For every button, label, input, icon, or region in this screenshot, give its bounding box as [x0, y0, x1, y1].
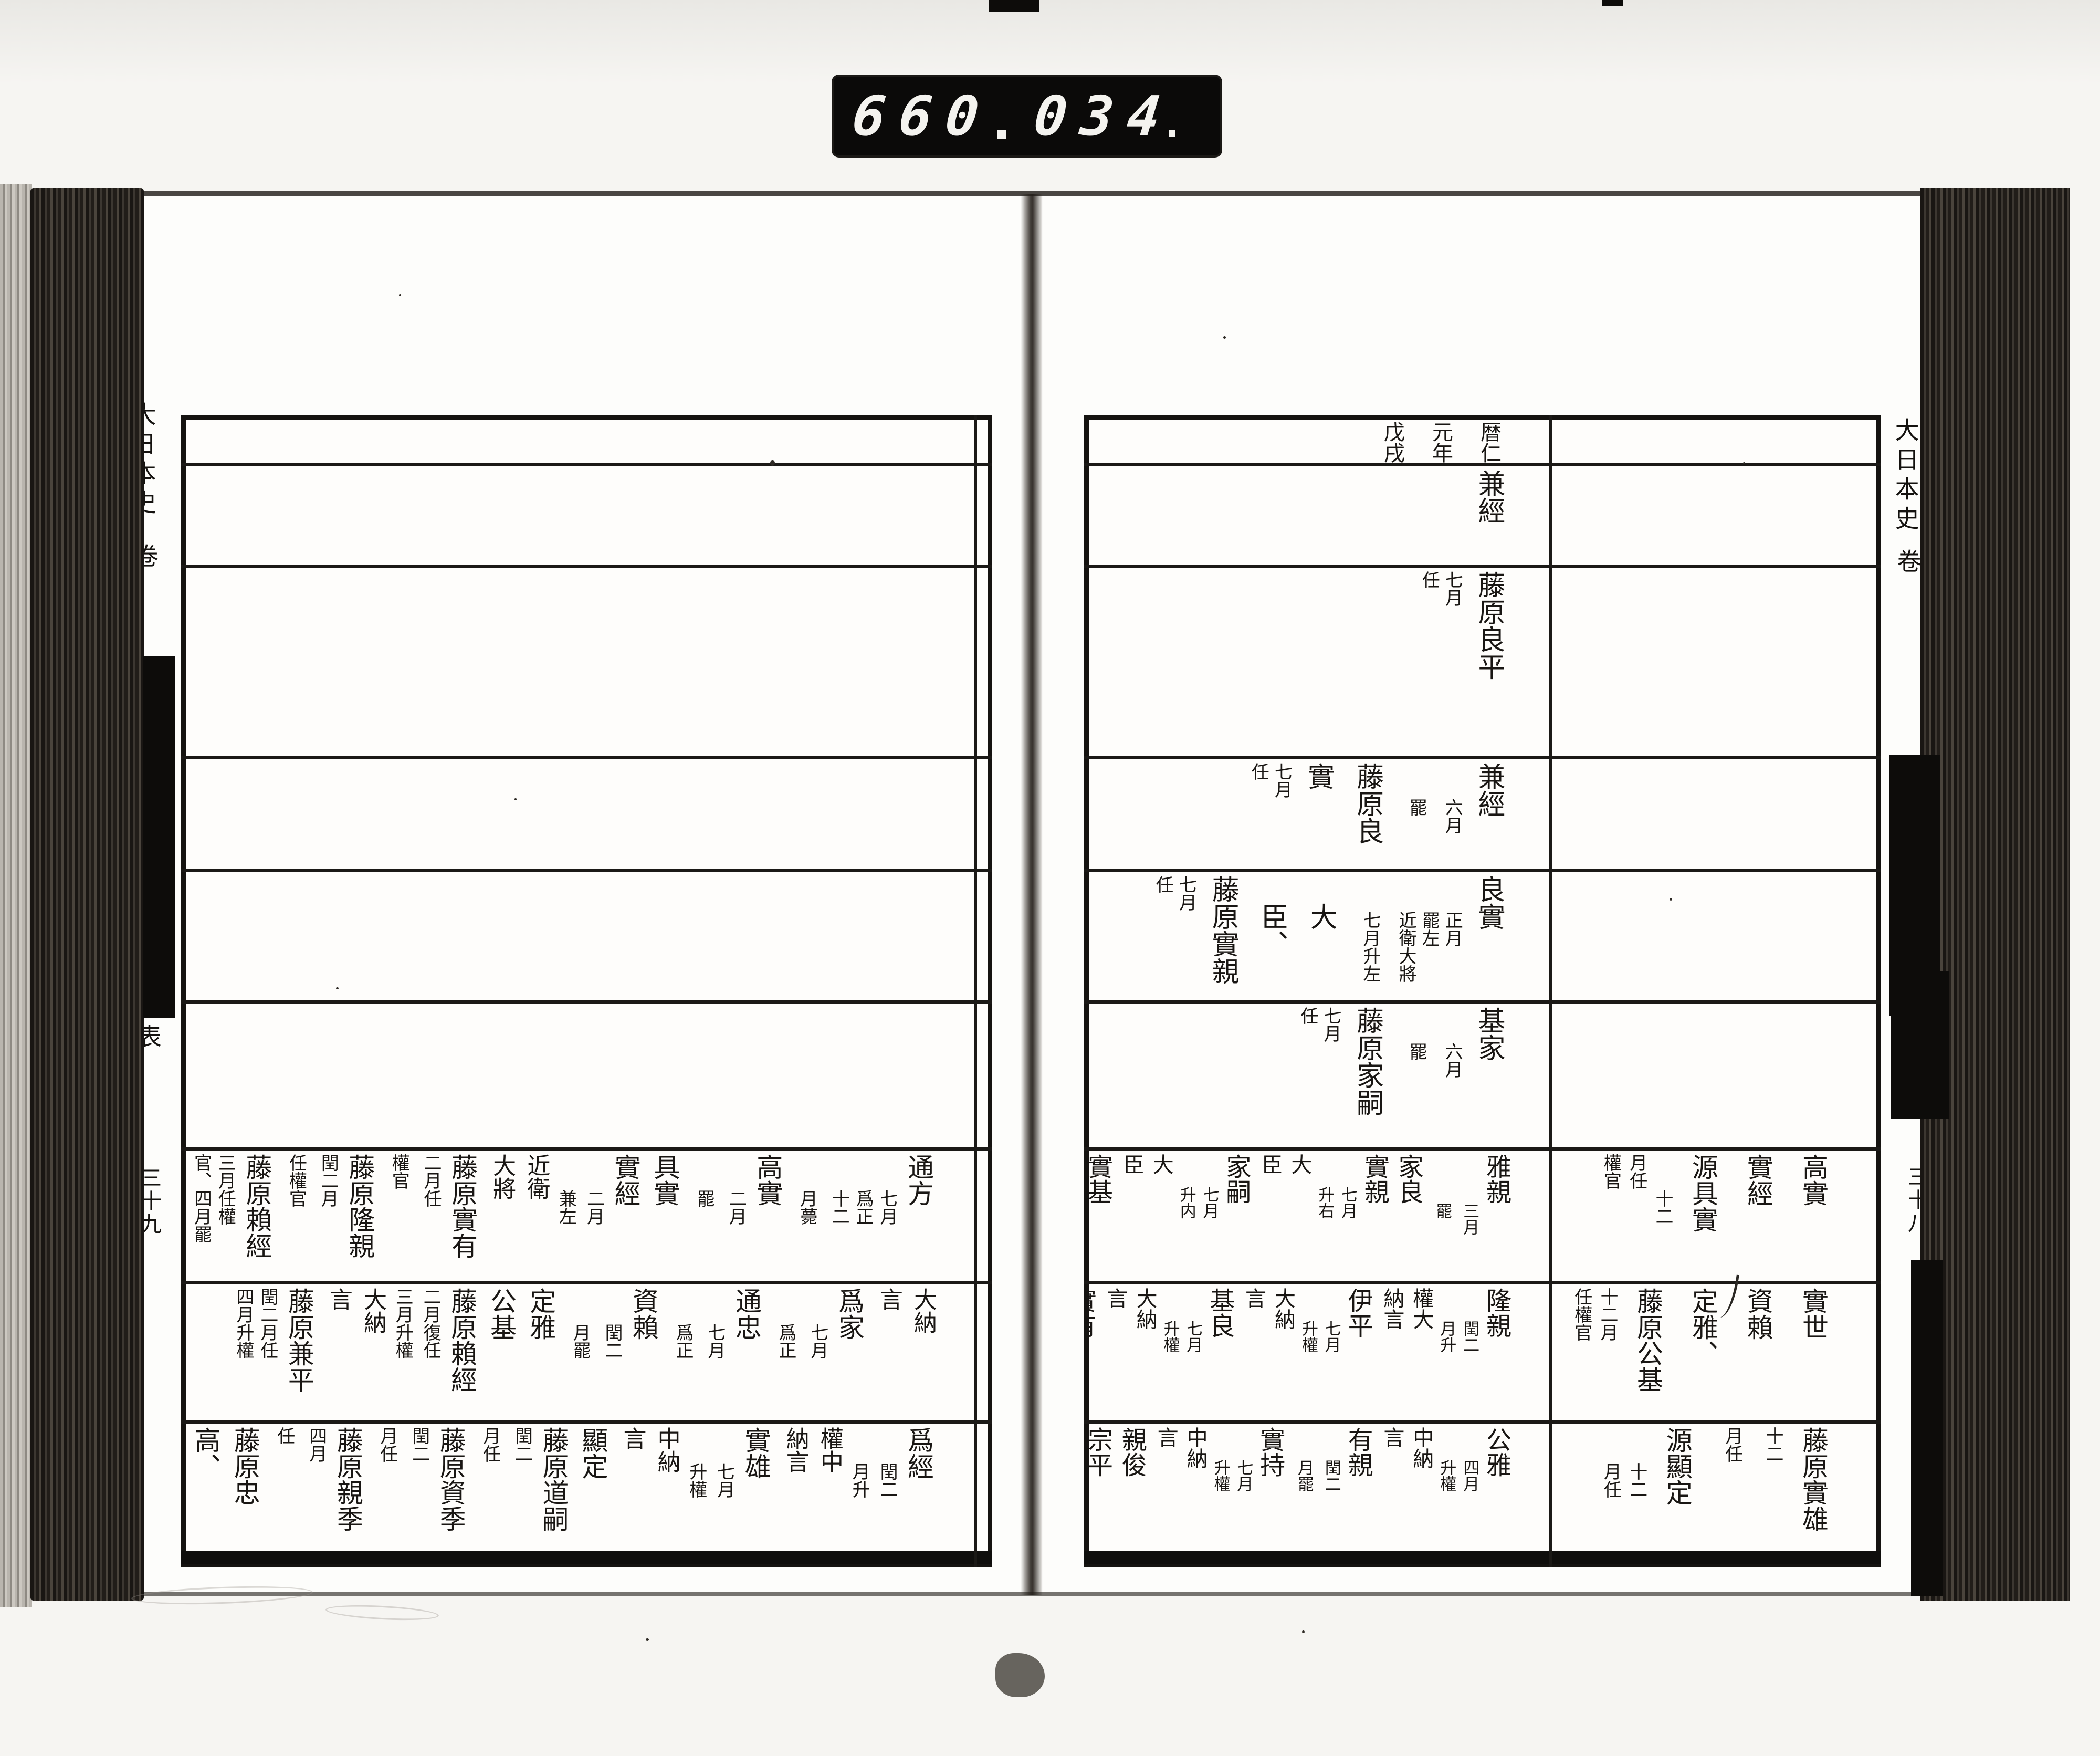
cell-annotation: 七月 爲正 [853, 1154, 898, 1225]
row-divider-line [181, 565, 992, 568]
cell-name-text: 具實 [649, 1154, 680, 1206]
cell-name-text: 權大 納言 [1380, 1288, 1433, 1330]
cell-name-text: 暦仁 元年 戊戌 [1380, 421, 1501, 463]
cell-name-text: 親俊 [1117, 1427, 1147, 1477]
cell-annotation: 二月 罷 [694, 1154, 747, 1225]
cell-name-text: 兼經 [1473, 469, 1505, 524]
cell-annotation: 閏二 月升 [849, 1427, 898, 1498]
cell-name-text: 實雄 [741, 1427, 771, 1479]
cell-annotation: 四月 任 [274, 1427, 327, 1462]
cell-annotation: 閏二 月任 [377, 1427, 430, 1462]
table-cell: 通方 七月 爲正 十二 月薨 高實 二月 罷 具實 實經 二月 兼左 近衛 大將… [186, 1147, 956, 1281]
top-right-mark [1602, 0, 1623, 6]
cell-name-text: 藤原良實 [1303, 762, 1383, 844]
cell-annotation: 六月 罷 [1406, 762, 1463, 834]
cell-name-text: 權中 納言 [782, 1427, 843, 1473]
cell-name-text: 實經 [1743, 1154, 1773, 1206]
table-cell: 雅親 三月 罷 家良 實親 七月 升右 大 臣 家嗣 七月 升内 大 臣 實基 [1089, 1147, 1531, 1281]
cell-name-text: 中納 言 [1380, 1427, 1433, 1469]
cell-name-text: 良實 [1473, 875, 1505, 930]
cell-name-text: 高實 [1798, 1154, 1829, 1206]
table-cell: 公雅 四月 升權 中納 言 有親 閏二 月罷 實持 七月 升權 中納 言 親俊 … [1089, 1420, 1531, 1549]
cell-annotation: 閏二 月任 [480, 1427, 533, 1462]
cell-name-text: 定雅 [526, 1288, 556, 1340]
cell-name-text: 藤原公基 [1633, 1288, 1663, 1393]
scanned-book-spread: 660 034 通方 七月 爲正 十二 月薨 高實 二月 罷 具實 實經 二月 … [0, 0, 2100, 1756]
row-divider-line [181, 756, 992, 759]
cell-annotation: 閏二 月罷 [570, 1288, 623, 1359]
table-bottom-bar [1084, 1551, 1881, 1564]
cell-annotation: 近衛大將 七月升左 [1360, 875, 1416, 982]
cell-name-text: 爲經 [904, 1427, 934, 1479]
cell-annotation: 七月 爲正 [775, 1288, 828, 1359]
right-edge-shadow-lower [1911, 1260, 1942, 1596]
cell-name-text: 大 臣、 [1256, 875, 1337, 957]
ink-speck [1669, 898, 1672, 901]
pencil-scribble [325, 1603, 439, 1622]
cell-name-text: 通忠 [731, 1288, 762, 1340]
table-cell: 兼經 六月 罷 藤原良實 七月 任 [1089, 756, 1531, 869]
cell-name-text: 顯定 [577, 1427, 608, 1479]
cell-name-text: 基良 [1205, 1288, 1234, 1338]
cell-name-text: 藤原良平 [1473, 571, 1505, 680]
cell-name-text: 藤原忠高、 [191, 1427, 260, 1506]
cell-annotation: 十二 月任 [1600, 1427, 1647, 1498]
cell-name-text: 近衛 大將 [489, 1154, 550, 1200]
ink-speck [770, 460, 775, 466]
microfilm-frame-counter: 660 034 [834, 77, 1220, 155]
cell-name-text: 有親 [1343, 1427, 1373, 1477]
ink-speck [336, 987, 339, 989]
table-cell: 兼經 [1089, 463, 1531, 565]
cell-annotation: 閏二月任 四月升權 [233, 1288, 278, 1359]
cell-name-text: 藤原兼平 [284, 1288, 314, 1393]
table-cell: 藤原實雄 十二 月任 源顯定 十二 月任 [1552, 1420, 1858, 1549]
top-center-mark [989, 0, 1039, 12]
cell-name-text: 資賴 [1743, 1288, 1773, 1340]
cell-name-text: 中納 言 [1154, 1427, 1207, 1469]
table-cell: 基家 六月 罷 藤原家嗣 七月 任 [1089, 1000, 1531, 1147]
cell-name-text: 源顯定 [1662, 1427, 1693, 1506]
cell-annotation: 七月 升權 [1211, 1427, 1253, 1492]
left-page-table: 通方 七月 爲正 十二 月薨 高實 二月 罷 具實 實經 二月 兼左 近衛 大將… [181, 415, 992, 1567]
cell-name-text: 隆親 [1482, 1288, 1511, 1338]
ink-speck [1743, 462, 1745, 464]
right-fore-edge-band [1920, 188, 2070, 1601]
edge-volume-right: 卷 [1894, 549, 1921, 578]
cell-annotation: 十二 月薨 [796, 1154, 849, 1225]
cell-name-text: 源具實 [1688, 1154, 1718, 1232]
cell-annotation: 六月 罷 [1406, 1007, 1463, 1078]
cell-name-text: 藤原實雄 [1798, 1427, 1829, 1532]
ink-speck [399, 294, 401, 296]
page-stack-edge [0, 184, 31, 1607]
left-fore-edge-band [30, 188, 144, 1601]
table-bottom-bar [181, 1551, 992, 1564]
cell-annotation: 二月任 權官 [388, 1154, 442, 1207]
cell-name-text: 實親 [1360, 1154, 1389, 1204]
cell-name-text: 實有 [1089, 1288, 1096, 1338]
cell-name-text: 大 臣 [1120, 1154, 1173, 1175]
cell-name-text: 大 臣 [1258, 1154, 1311, 1175]
table-cell: 良實 正月 罷左 近衛大將 七月升左 大 臣、 藤原實親 七月 任 [1089, 869, 1531, 1000]
cell-annotation: 三月 罷 [1433, 1154, 1479, 1235]
cell-name-text: 藤原道嗣 [538, 1427, 569, 1532]
cell-name-text: 藤原資季 [436, 1427, 466, 1532]
cell-name-text: 大納 言 [1104, 1288, 1157, 1330]
cell-name-text: 伊平 [1343, 1288, 1373, 1338]
table-cell: 高實 實經 源具實 十二 月任 權官 [1552, 1147, 1858, 1281]
cell-name-text: 實持 [1255, 1427, 1285, 1477]
cell-annotation: 七月 升内 [1177, 1154, 1219, 1219]
cell-annotation: 七月 任 [1297, 1007, 1341, 1042]
cell-annotation: 十二月 任權官 [1571, 1288, 1618, 1341]
cell-name-text: 藤原隆親 [344, 1154, 375, 1259]
cell-name-text: 通方 [904, 1154, 934, 1206]
cell-name-text: 基家 [1473, 1007, 1505, 1061]
ink-speck [1302, 1630, 1305, 1633]
counter-right-digits: 034 [1031, 84, 1177, 148]
cell-name-text: 藤原親季 [333, 1427, 363, 1532]
table-cell: 實世 資賴 定雅、 藤原公基 十二月 任權官 [1552, 1281, 1858, 1420]
cell-name-text: 藤原實親 [1207, 875, 1238, 985]
cell-annotation: 閏二 月升 [1437, 1288, 1479, 1353]
table-cell: 大納 言 爲家 七月 爲正 通忠 七月 爲正 資賴 閏二 月罷 定雅 公基 藤原… [186, 1281, 956, 1420]
cell-annotation: 七月 任 [1152, 875, 1196, 911]
ink-speck [1223, 336, 1226, 339]
left-binding-shadow [143, 656, 175, 1018]
cell-annotation: 七月 任 [1419, 571, 1463, 607]
section-divider-line [974, 415, 977, 1567]
cell-annotation: 七月 升右 [1315, 1154, 1357, 1219]
cell-name-text: 家嗣 [1221, 1154, 1251, 1204]
cell-name-text: 大納 言 [1242, 1288, 1295, 1330]
page-bottom-edge [105, 1592, 1921, 1596]
cell-annotation: 正月 罷左 [1419, 875, 1463, 947]
edge-title-right: 大日本史 [1892, 417, 1919, 535]
fold-ink-blot [995, 1653, 1045, 1697]
cell-name-text: 宗平 [1089, 1427, 1112, 1477]
center-fold [1021, 194, 1043, 1595]
ink-speck [514, 798, 517, 800]
page-top-edge [88, 191, 1936, 196]
cell-name-text: 公基 [486, 1288, 517, 1340]
cell-annotation: 七月 爲正 [673, 1288, 726, 1359]
cell-name-text: 雅親 [1482, 1154, 1511, 1204]
cell-annotation: 二月 兼左 [556, 1154, 605, 1225]
counter-separator-dot [997, 130, 1006, 139]
cell-name-text: 資賴 [628, 1288, 659, 1340]
row-divider-line [181, 869, 992, 872]
cell-name-text: 實經 [610, 1154, 640, 1206]
table-cell: 爲經 閏二 月升 權中 納言 實雄 七月 升權 中納 言 顯定 藤原道嗣 閏二 … [186, 1420, 956, 1549]
cell-annotation: 三月任權 官、四月罷 [191, 1154, 236, 1243]
table-cell: 暦仁 元年 戊戌 [1089, 415, 1531, 463]
cell-name-text: 藤原賴經 [447, 1288, 477, 1393]
cell-annotation: 二月復任 三月升權 [392, 1288, 441, 1359]
cell-annotation: 七月 任 [1248, 762, 1292, 798]
cell-annotation: 四月 升權 [1437, 1427, 1479, 1492]
cell-annotation: 閏二 月罷 [1295, 1427, 1341, 1492]
ink-speck [1496, 662, 1498, 664]
row-divider-line [181, 1000, 992, 1004]
cell-name-text: 高實 [752, 1154, 783, 1206]
cell-name-text: 大納 言 [876, 1288, 937, 1334]
cell-name-text: 大納 言 [325, 1288, 386, 1334]
right-edge-blot [1891, 971, 1949, 1119]
cell-name-text: 公雅 [1482, 1427, 1511, 1477]
cell-name-text: 藤原實有 [447, 1154, 478, 1259]
cell-name-text: 實基 [1089, 1154, 1112, 1204]
cell-annotation: 十二 月任 權官 [1600, 1154, 1673, 1225]
cell-name-text: 實世 [1798, 1288, 1829, 1340]
cell-annotation: 十二 月任 [1722, 1427, 1783, 1462]
table-cell: 藤原良平 七月 任 [1089, 565, 1531, 756]
cell-name-text: 爲家 [834, 1288, 865, 1340]
cell-name-text: 中納 言 [619, 1427, 680, 1473]
row-divider-line [181, 463, 992, 466]
cell-name-text: 藤原賴經 [241, 1154, 272, 1259]
cell-annotation: 七月 升權 [1161, 1288, 1203, 1353]
cell-name-text: 定雅、 [1688, 1288, 1718, 1366]
ink-speck [646, 1638, 649, 1641]
cell-annotation: 閏二月 任權官 [286, 1154, 339, 1207]
cell-name-text: 藤原家嗣 [1352, 1007, 1383, 1116]
right-page-table: 暦仁 元年 戊戌兼經藤原良平 七月 任兼經 六月 罷 藤原良實 七月 任良實 正… [1084, 415, 1881, 1567]
table-cell: 隆親 閏二 月升 權大 納言 伊平 七月 升權 大納 言 基良 七月 升權 大納… [1089, 1281, 1531, 1420]
cell-annotation: 七月 升權 [686, 1427, 735, 1498]
cell-name-text: 家良 [1394, 1154, 1423, 1204]
counter-left-digits: 660 [849, 84, 996, 148]
cell-annotation: 七月 升權 [1299, 1288, 1341, 1353]
cell-name-text: 兼經 [1473, 762, 1505, 817]
